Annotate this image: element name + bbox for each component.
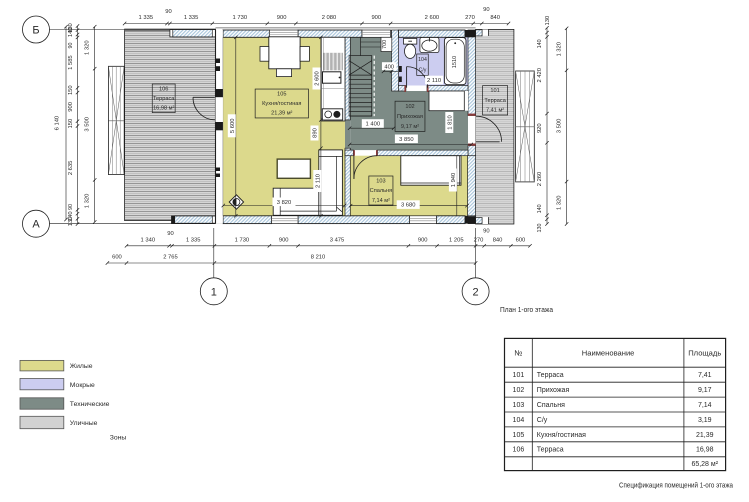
svg-text:3 820: 3 820 xyxy=(277,200,292,206)
svg-text:2 600: 2 600 xyxy=(425,15,440,21)
svg-text:900: 900 xyxy=(68,102,74,112)
svg-text:90: 90 xyxy=(165,9,171,15)
svg-text:1 335: 1 335 xyxy=(186,237,201,243)
svg-text:Терраса: Терраса xyxy=(484,98,506,104)
svg-text:9,17 м²: 9,17 м² xyxy=(401,124,419,130)
svg-text:130: 130 xyxy=(68,217,74,227)
svg-text:9,17: 9,17 xyxy=(698,387,712,394)
svg-text:Спальня: Спальня xyxy=(370,188,392,194)
svg-text:С/у: С/у xyxy=(537,417,548,424)
svg-text:1 730: 1 730 xyxy=(235,237,250,243)
svg-text:3 475: 3 475 xyxy=(330,237,345,243)
svg-text:Наименование: Наименование xyxy=(582,349,635,358)
svg-text:16,98 м²: 16,98 м² xyxy=(153,105,174,111)
svg-text:А: А xyxy=(32,219,40,231)
svg-text:900: 900 xyxy=(371,15,381,21)
svg-text:103: 103 xyxy=(376,178,385,184)
svg-text:900: 900 xyxy=(277,15,287,21)
svg-text:890: 890 xyxy=(313,128,319,138)
svg-text:Спальня: Спальня xyxy=(537,402,565,409)
svg-text:700: 700 xyxy=(382,40,388,49)
svg-text:2 080: 2 080 xyxy=(322,15,337,21)
svg-text:Спецификация помещений 1-ого э: Спецификация помещений 1-ого этажа xyxy=(619,481,733,490)
svg-text:1 585: 1 585 xyxy=(68,55,74,70)
svg-text:№: № xyxy=(514,349,522,358)
svg-text:101: 101 xyxy=(513,372,525,379)
svg-text:С/у: С/у xyxy=(419,67,427,73)
svg-text:2 110: 2 110 xyxy=(315,174,321,188)
svg-text:1 940: 1 940 xyxy=(451,173,457,188)
svg-text:1 730: 1 730 xyxy=(233,15,248,21)
svg-text:1 205: 1 205 xyxy=(449,237,464,243)
svg-text:2 110: 2 110 xyxy=(427,78,441,84)
svg-text:6 140: 6 140 xyxy=(55,116,61,131)
svg-text:Кухня/гостиная: Кухня/гостиная xyxy=(537,432,586,439)
svg-text:1 335: 1 335 xyxy=(184,15,199,21)
svg-text:1 810: 1 810 xyxy=(447,115,453,130)
svg-text:130: 130 xyxy=(545,16,551,26)
svg-text:90: 90 xyxy=(483,228,489,234)
svg-text:65,28 м²: 65,28 м² xyxy=(691,461,718,468)
svg-text:105: 105 xyxy=(513,432,525,439)
svg-text:101: 101 xyxy=(490,88,499,94)
svg-text:Терраса: Терраса xyxy=(537,372,564,379)
svg-text:600: 600 xyxy=(112,255,122,261)
svg-text:Технические: Технические xyxy=(70,401,110,408)
svg-text:270: 270 xyxy=(465,15,475,21)
svg-text:7,14: 7,14 xyxy=(698,402,712,409)
svg-text:2 420: 2 420 xyxy=(537,68,543,83)
svg-text:920: 920 xyxy=(537,123,543,133)
svg-text:1 340: 1 340 xyxy=(141,237,156,243)
svg-text:103: 103 xyxy=(513,402,525,409)
svg-text:102: 102 xyxy=(405,104,414,110)
svg-text:2 600: 2 600 xyxy=(315,71,321,86)
svg-text:140: 140 xyxy=(537,204,543,213)
svg-text:140: 140 xyxy=(68,27,74,37)
svg-text:21,39 м²: 21,39 м² xyxy=(271,111,292,117)
svg-text:150: 150 xyxy=(68,85,74,95)
svg-text:2 765: 2 765 xyxy=(163,255,178,261)
svg-text:104: 104 xyxy=(513,417,525,424)
svg-text:1 400: 1 400 xyxy=(366,122,381,128)
svg-text:Кухня/гостиная: Кухня/гостиная xyxy=(262,101,301,107)
svg-text:1 320: 1 320 xyxy=(84,194,90,209)
svg-text:1 320: 1 320 xyxy=(84,40,90,55)
svg-text:150: 150 xyxy=(68,119,74,129)
svg-text:840: 840 xyxy=(493,237,503,243)
svg-text:3 500: 3 500 xyxy=(556,119,562,134)
svg-text:104: 104 xyxy=(418,57,427,63)
svg-text:105: 105 xyxy=(277,91,286,97)
svg-text:3,19: 3,19 xyxy=(698,417,712,424)
svg-text:16,98: 16,98 xyxy=(696,447,714,454)
svg-text:План 1-ого этажа: План 1-ого этажа xyxy=(500,305,554,314)
svg-text:5 600: 5 600 xyxy=(230,119,236,134)
svg-text:8 210: 8 210 xyxy=(311,255,326,261)
svg-text:21,39: 21,39 xyxy=(696,432,714,439)
svg-text:2: 2 xyxy=(473,286,479,298)
svg-text:Прихожая: Прихожая xyxy=(397,114,423,120)
svg-text:Терраса: Терраса xyxy=(537,447,564,454)
svg-text:Зоны: Зоны xyxy=(110,435,127,442)
svg-text:900: 900 xyxy=(279,237,289,243)
svg-text:130: 130 xyxy=(537,224,543,233)
svg-text:1: 1 xyxy=(211,286,217,298)
svg-text:Уличные: Уличные xyxy=(70,420,98,427)
svg-text:1 335: 1 335 xyxy=(139,15,154,21)
svg-text:Терраса: Терраса xyxy=(153,96,175,102)
svg-text:1 320: 1 320 xyxy=(556,196,562,211)
svg-text:102: 102 xyxy=(513,387,525,394)
svg-text:Прихожая: Прихожая xyxy=(537,387,570,394)
svg-text:3 500: 3 500 xyxy=(84,117,90,132)
svg-text:106: 106 xyxy=(513,447,525,454)
svg-text:270: 270 xyxy=(474,237,484,243)
svg-text:7,41: 7,41 xyxy=(698,372,712,379)
svg-text:Площадь: Площадь xyxy=(688,349,721,358)
svg-text:90: 90 xyxy=(483,7,489,13)
svg-text:2 260: 2 260 xyxy=(537,172,543,187)
svg-text:90: 90 xyxy=(68,43,74,49)
svg-text:90: 90 xyxy=(167,231,173,237)
svg-text:600: 600 xyxy=(516,237,526,243)
svg-text:90: 90 xyxy=(68,204,74,210)
svg-text:1510: 1510 xyxy=(452,56,458,68)
svg-text:Жилые: Жилые xyxy=(70,363,93,370)
svg-text:106: 106 xyxy=(159,86,168,92)
svg-text:Мокрые: Мокрые xyxy=(70,382,95,389)
svg-text:400: 400 xyxy=(384,64,394,70)
svg-text:Б: Б xyxy=(32,25,39,37)
svg-text:3 680: 3 680 xyxy=(401,203,416,209)
svg-text:840: 840 xyxy=(490,15,500,21)
svg-text:140: 140 xyxy=(537,39,543,48)
svg-text:3 850: 3 850 xyxy=(399,137,414,143)
svg-text:7,14 м²: 7,14 м² xyxy=(372,198,390,204)
svg-text:2 635: 2 635 xyxy=(68,161,74,176)
svg-text:1 320: 1 320 xyxy=(556,42,562,57)
svg-text:7,41 м²: 7,41 м² xyxy=(486,108,504,114)
svg-text:900: 900 xyxy=(418,237,428,243)
